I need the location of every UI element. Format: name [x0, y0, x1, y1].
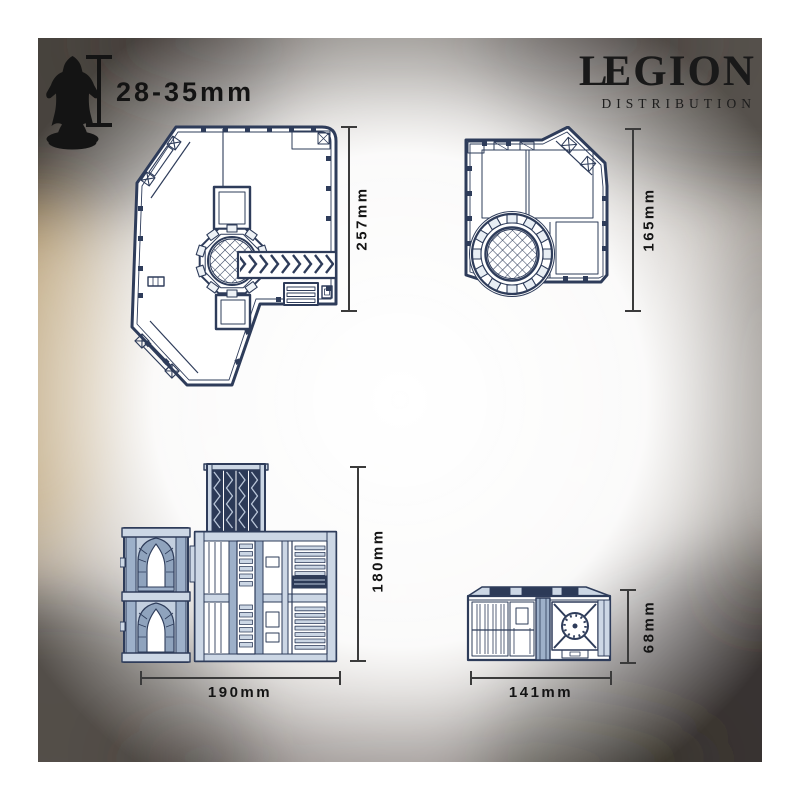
- brand-name: LEGION: [579, 50, 756, 93]
- front-elevation: [120, 462, 342, 663]
- plan-view-large: [126, 121, 350, 403]
- product-image: 28-35mm LEGION DISTRIBUTION: [0, 0, 800, 800]
- plan-view-small: [458, 126, 610, 312]
- dimension-label-plan-large-height: 257mm: [354, 169, 371, 269]
- dimension-label-plan-small-height: 165mm: [641, 170, 658, 270]
- elevation-tower: [204, 464, 268, 532]
- dimension-label-elevation-front-width: 190mm: [190, 684, 290, 701]
- dimension-label-elevation-front-height: 180mm: [370, 511, 387, 611]
- brand-subtitle: DISTRIBUTION: [579, 96, 756, 112]
- scale-bar-icon: [84, 54, 114, 130]
- chevron-walkway: [238, 252, 336, 278]
- side-elevation: [466, 584, 614, 666]
- scale-range-label: 28-35mm: [116, 77, 254, 108]
- round-tower: [470, 212, 555, 297]
- dimension-line-elevation-front-height: [357, 466, 359, 662]
- elevation-main-block: [195, 532, 336, 661]
- dimension-line-plan-small-height: [632, 128, 634, 312]
- ladder-strip: [237, 541, 255, 654]
- dimension-label-elevation-side-width: 141mm: [491, 684, 591, 701]
- brand-logo: LEGION DISTRIBUTION: [579, 50, 756, 112]
- dimension-line-elevation-side-width: [470, 677, 612, 679]
- dimension-line-elevation-side-height: [627, 589, 629, 664]
- dimension-line-elevation-front-width: [140, 677, 341, 679]
- gothic-section: [120, 528, 195, 662]
- dimension-line-plan-large-height: [348, 126, 350, 312]
- divider-column: [536, 598, 550, 660]
- dimension-label-elevation-side-height: 68mm: [641, 577, 658, 677]
